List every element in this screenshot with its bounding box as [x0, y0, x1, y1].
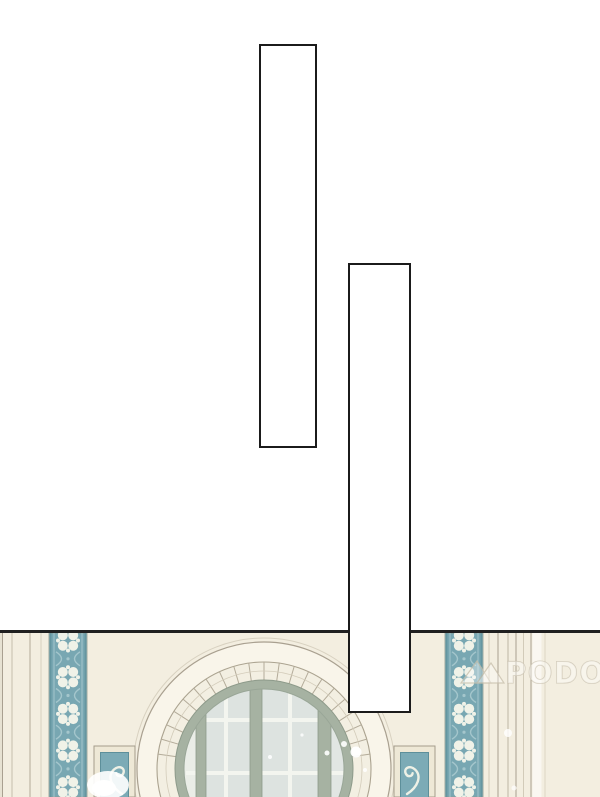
speech-bubble-1-text — [261, 46, 315, 446]
speech-bubble-1 — [259, 44, 317, 448]
comic-page: PODO — [0, 0, 600, 797]
panel-divider-line — [0, 630, 600, 633]
scene-svg: PODO — [0, 630, 600, 797]
tile-column-left — [49, 630, 87, 797]
speech-bubble-2 — [348, 263, 411, 713]
niche-right — [394, 746, 435, 797]
watermark-text: PODO — [505, 656, 600, 690]
speech-bubble-2-text — [350, 265, 409, 711]
tile-column-right — [445, 630, 483, 797]
scene-illustration: PODO — [0, 630, 600, 797]
